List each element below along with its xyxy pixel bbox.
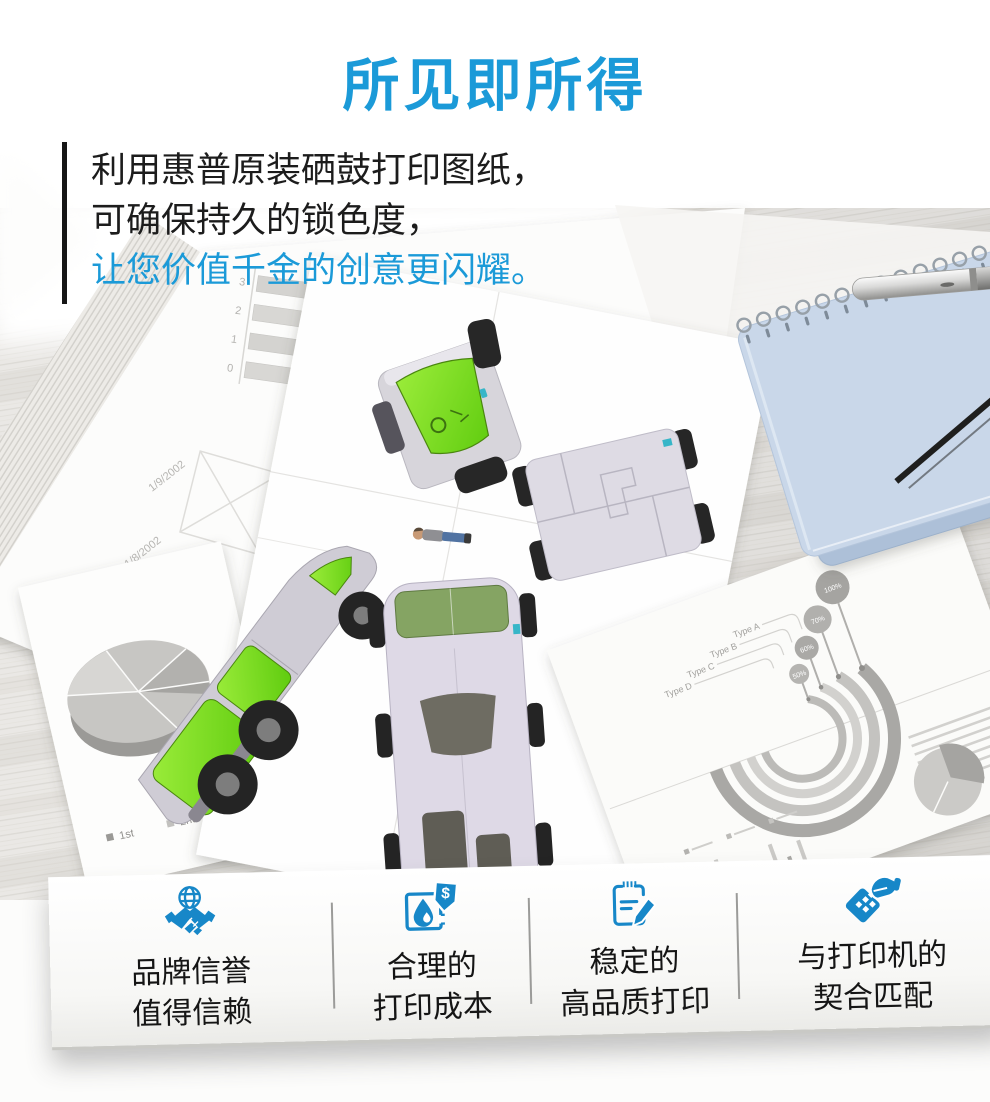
feature-title: 与打印机的 [797,934,948,979]
printer-match-icon [838,867,903,932]
intro-line-1: 利用惠普原装硒鼓打印图纸， [91,146,546,196]
feature-subtitle: 打印成本 [372,986,493,1030]
intro-line-3: 让您价值千金的创意更闪耀。 [91,246,546,296]
intro-line-2: 可确保持久的锁色度， [91,196,546,246]
feature-subtitle: 高品质打印 [560,981,711,1026]
print-cost-icon: $ [398,878,463,943]
feature-print-cost: $ 合理的 打印成本 [332,876,531,1031]
feature-title: 合理的 [386,945,477,988]
feature-title: 稳定的 [589,940,680,983]
promo-banner: 3 2 1 0 1/9/2002 1/8/2002 [0,0,990,1102]
feature-title: 品牌信誉 [131,951,252,995]
feature-brand-trust: 品牌信誉 值得信赖 [48,881,333,1038]
page-title: 所见即所得 [0,40,990,122]
feature-bar: 品牌信誉 值得信赖 $ 合理的 打印成本 [48,855,990,1047]
feature-print-quality: 稳定的 高品质打印 [530,871,739,1026]
intro-copy: 利用惠普原装硒鼓打印图纸， 可确保持久的锁色度， 让您价值千金的创意更闪耀。 [62,142,546,304]
feature-subtitle: 值得信赖 [132,992,253,1036]
svg-text:$: $ [440,885,450,903]
feature-printer-match: 与打印机的 契合匹配 [737,865,990,1021]
feature-subtitle: 契合匹配 [813,975,934,1019]
brand-trust-icon [157,883,222,948]
print-quality-icon [600,873,665,938]
